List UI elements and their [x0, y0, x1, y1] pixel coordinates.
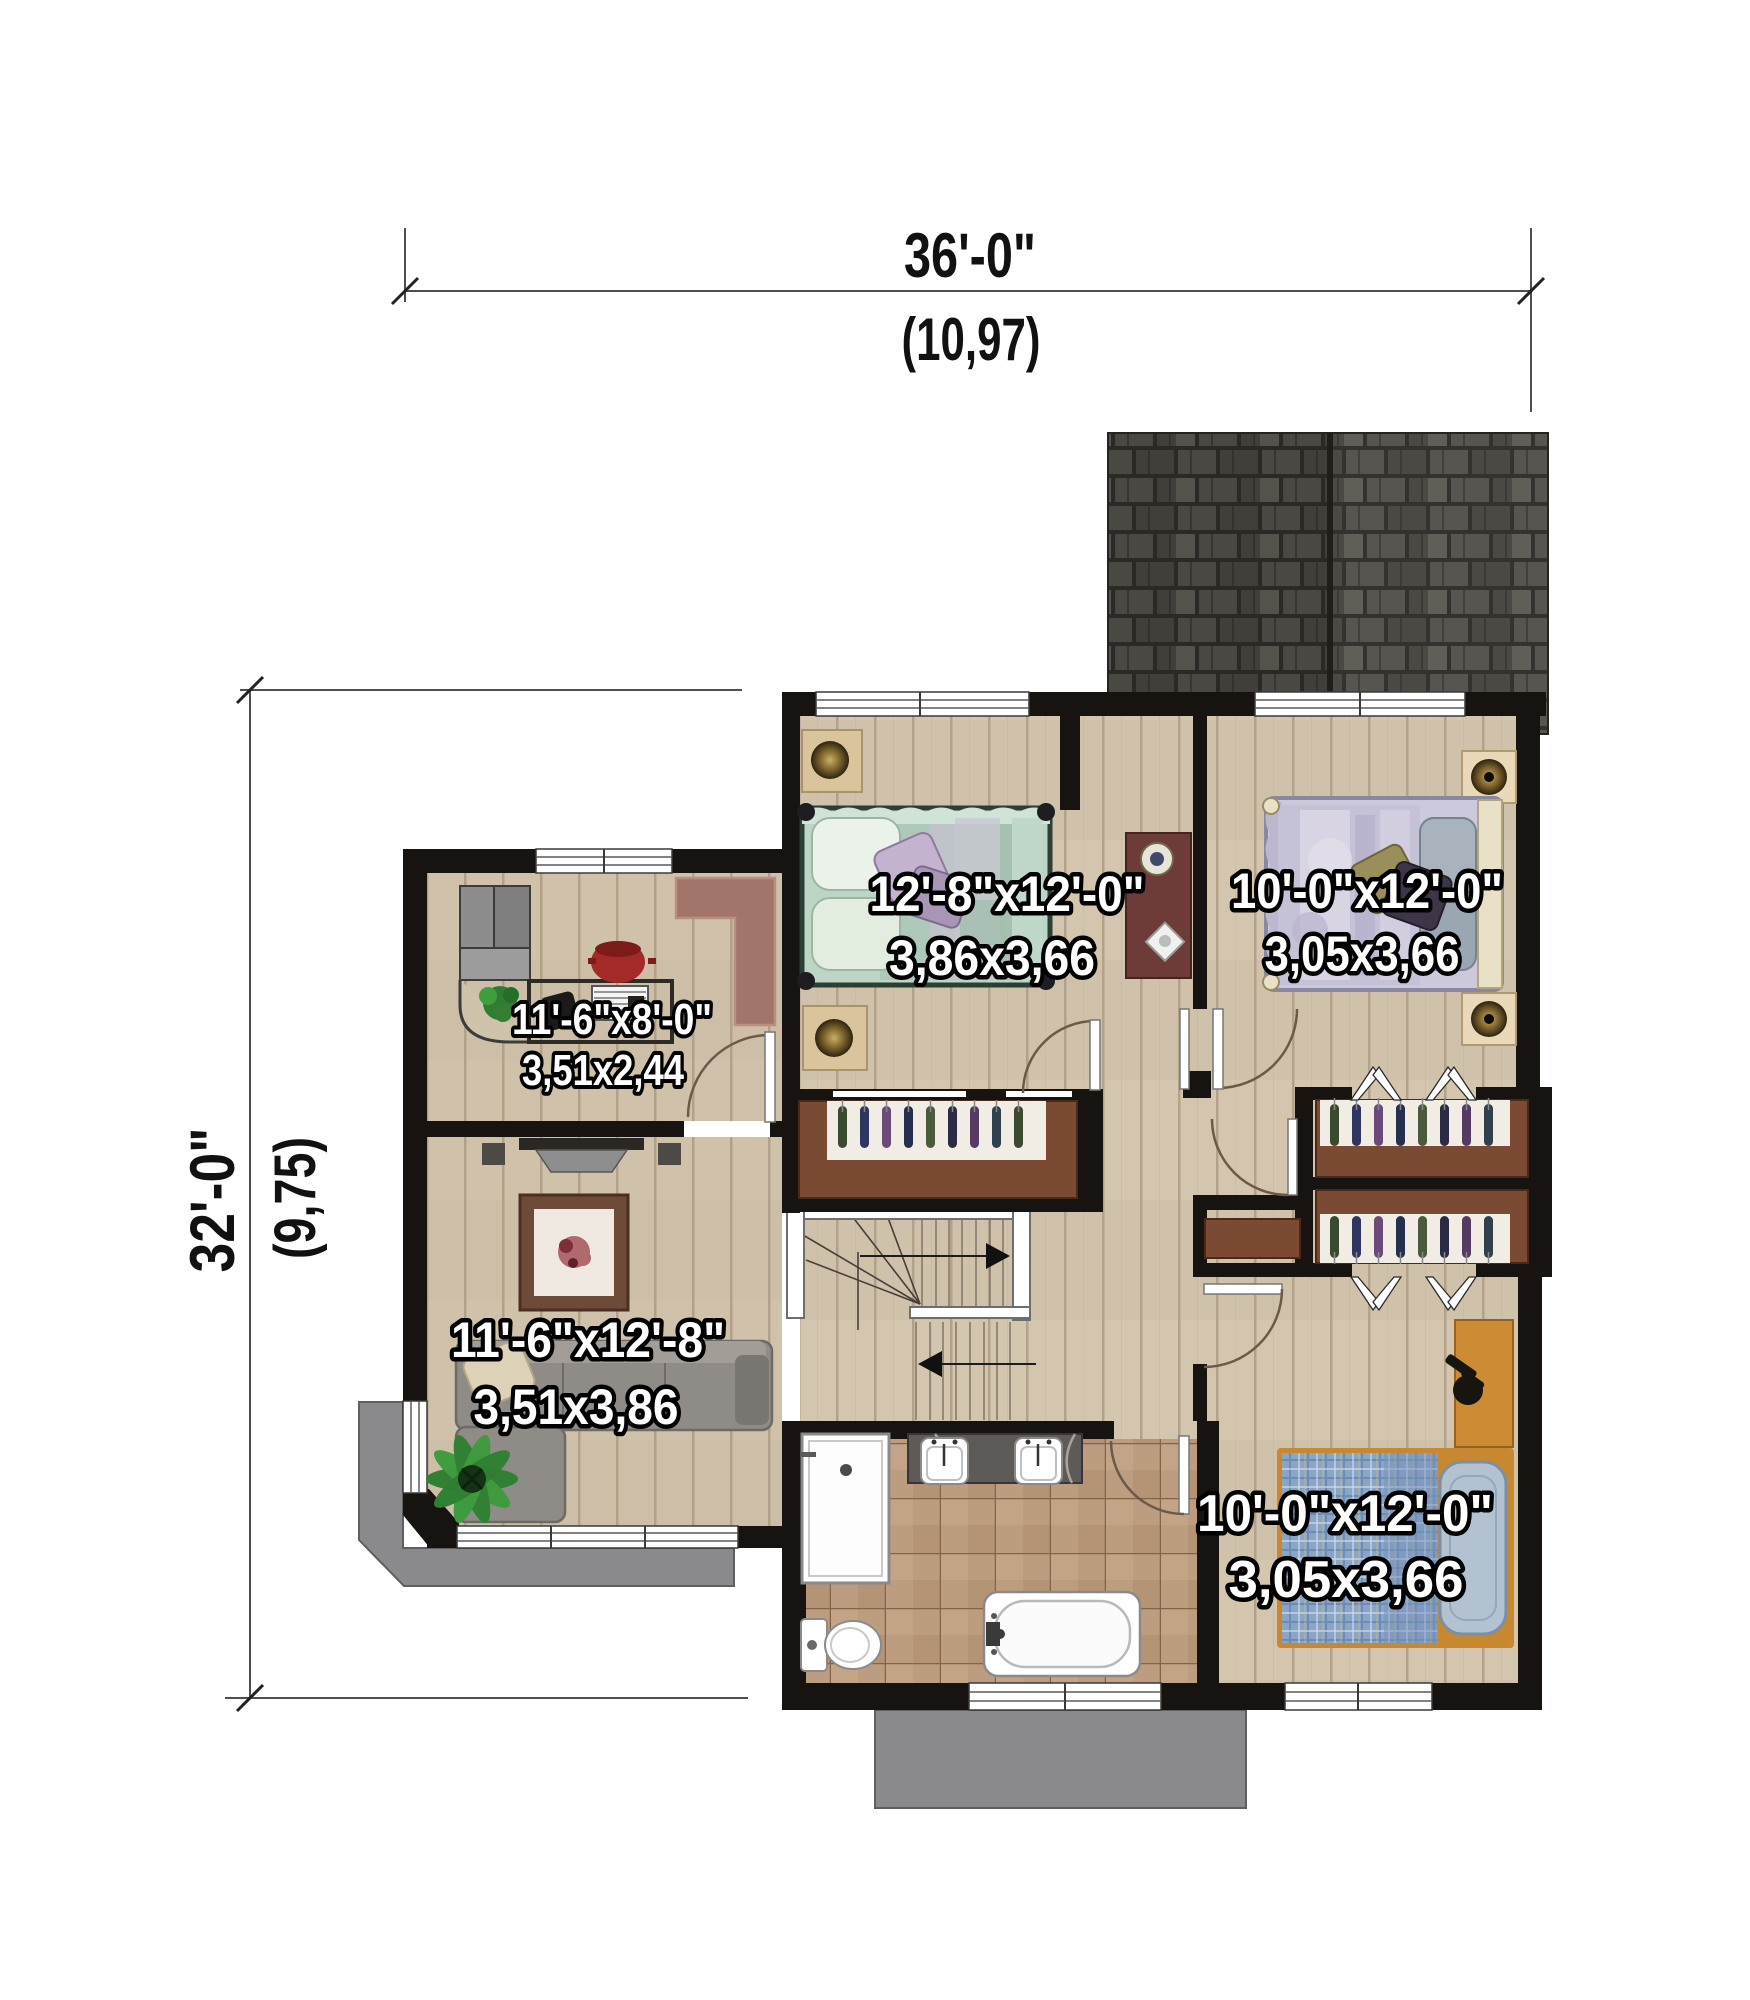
- svg-text:3,86x3,66: 3,86x3,66: [889, 930, 1095, 986]
- svg-text:11'-6"x12'-8": 11'-6"x12'-8": [451, 1312, 725, 1368]
- svg-text:12'-8"x12'-0": 12'-8"x12'-0": [870, 866, 1145, 922]
- svg-text:10'-0"x12'-0": 10'-0"x12'-0": [1231, 863, 1503, 919]
- svg-text:(10,97): (10,97): [902, 306, 1041, 373]
- svg-text:10'-0"x12'-0": 10'-0"x12'-0": [1197, 1485, 1493, 1543]
- svg-text:32'-0": 32'-0": [178, 1128, 248, 1273]
- svg-text:11'-6"x8'-0": 11'-6"x8'-0": [512, 995, 712, 1044]
- svg-text:3,51x3,86: 3,51x3,86: [474, 1379, 679, 1435]
- svg-text:3,05x3,66: 3,05x3,66: [1265, 926, 1460, 982]
- svg-text:3,05x3,66: 3,05x3,66: [1229, 1551, 1464, 1609]
- svg-text:36'-0": 36'-0": [904, 221, 1036, 291]
- svg-text:3,51x2,44: 3,51x2,44: [522, 1046, 684, 1095]
- svg-text:(9,75): (9,75): [263, 1137, 328, 1259]
